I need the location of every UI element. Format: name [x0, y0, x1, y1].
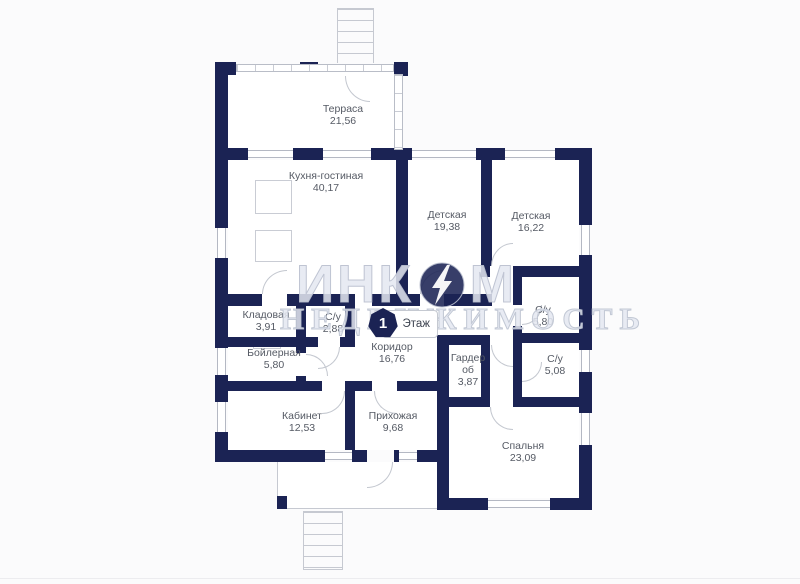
wall-segment [550, 498, 592, 510]
wall-segment [371, 148, 412, 160]
wall-segment [340, 337, 355, 347]
kitchen-island-symbol [255, 180, 292, 214]
terrace-glazing-top [236, 64, 394, 72]
wall-segment [355, 381, 372, 391]
window-marker [412, 150, 476, 158]
window-marker [488, 500, 550, 508]
window-marker [217, 402, 226, 432]
terrace-post [228, 62, 236, 75]
room-label-corridor: Коридор16,76 [371, 342, 412, 366]
window-marker [581, 413, 590, 445]
wall-segment [306, 337, 318, 347]
wall-segment [215, 62, 228, 228]
wall-segment [397, 381, 437, 391]
room-label-nursery-1: Детская19,38 [428, 210, 467, 234]
room-label-study: Кабинет12,53 [282, 411, 322, 435]
room-label-terrace: Терраса21,56 [323, 104, 363, 128]
window-marker [248, 150, 293, 158]
room-label-hallway: Прихожая9,68 [369, 411, 418, 435]
wall-segment [579, 148, 592, 225]
stairs-top [337, 8, 374, 63]
window-marker [323, 150, 371, 158]
room-label-wc-508: С/у5,08 [545, 354, 565, 378]
window-marker [325, 452, 352, 460]
porch-floor [278, 462, 437, 508]
floor-plan: Терраса21,56 Кухня-гостиная40,17 Детская… [0, 0, 800, 584]
watermark-subtitle: НЕДВИЖИМОСТЬ [280, 303, 647, 334]
wall-segment [215, 337, 306, 347]
wall-segment [437, 397, 490, 407]
window-marker [399, 452, 417, 460]
wall-segment [513, 397, 592, 407]
wall-segment [513, 343, 522, 397]
wall-segment [437, 335, 449, 510]
floor-badge-label: Этаж [403, 318, 431, 330]
wall-segment [293, 148, 323, 160]
stairs-bottom [303, 511, 343, 570]
wall-segment [215, 294, 262, 306]
wall-segment [215, 148, 248, 160]
room-label-kitchen-living: Кухня-гостиная40,17 [289, 171, 363, 195]
page-bottom-divider [0, 578, 800, 579]
wall-segment [215, 450, 325, 462]
terrace-glazing-right [394, 74, 403, 150]
room-label-wardrobe: Гардероб3,87 [449, 353, 488, 389]
porch-post [277, 496, 287, 509]
window-marker [505, 150, 555, 158]
window-marker [581, 225, 590, 255]
window-marker [581, 350, 590, 372]
wall-segment [481, 160, 492, 266]
window-marker [217, 348, 226, 375]
room-label-nursery-2: Детская16,22 [512, 211, 551, 235]
wall-segment [437, 335, 490, 345]
floor-number: 1 [379, 315, 387, 332]
room-label-boiler-room: Бойлерная5,80 [247, 348, 301, 372]
wall-segment [352, 450, 367, 462]
wall-segment [345, 381, 355, 450]
porch-edge-bottom [277, 508, 438, 509]
kitchen-table-symbol [255, 230, 292, 262]
wall-segment [513, 266, 592, 277]
window-marker [217, 228, 226, 258]
room-label-bedroom: Спальня23,09 [502, 441, 544, 465]
wall-segment [215, 381, 322, 391]
wall-segment [476, 148, 505, 160]
